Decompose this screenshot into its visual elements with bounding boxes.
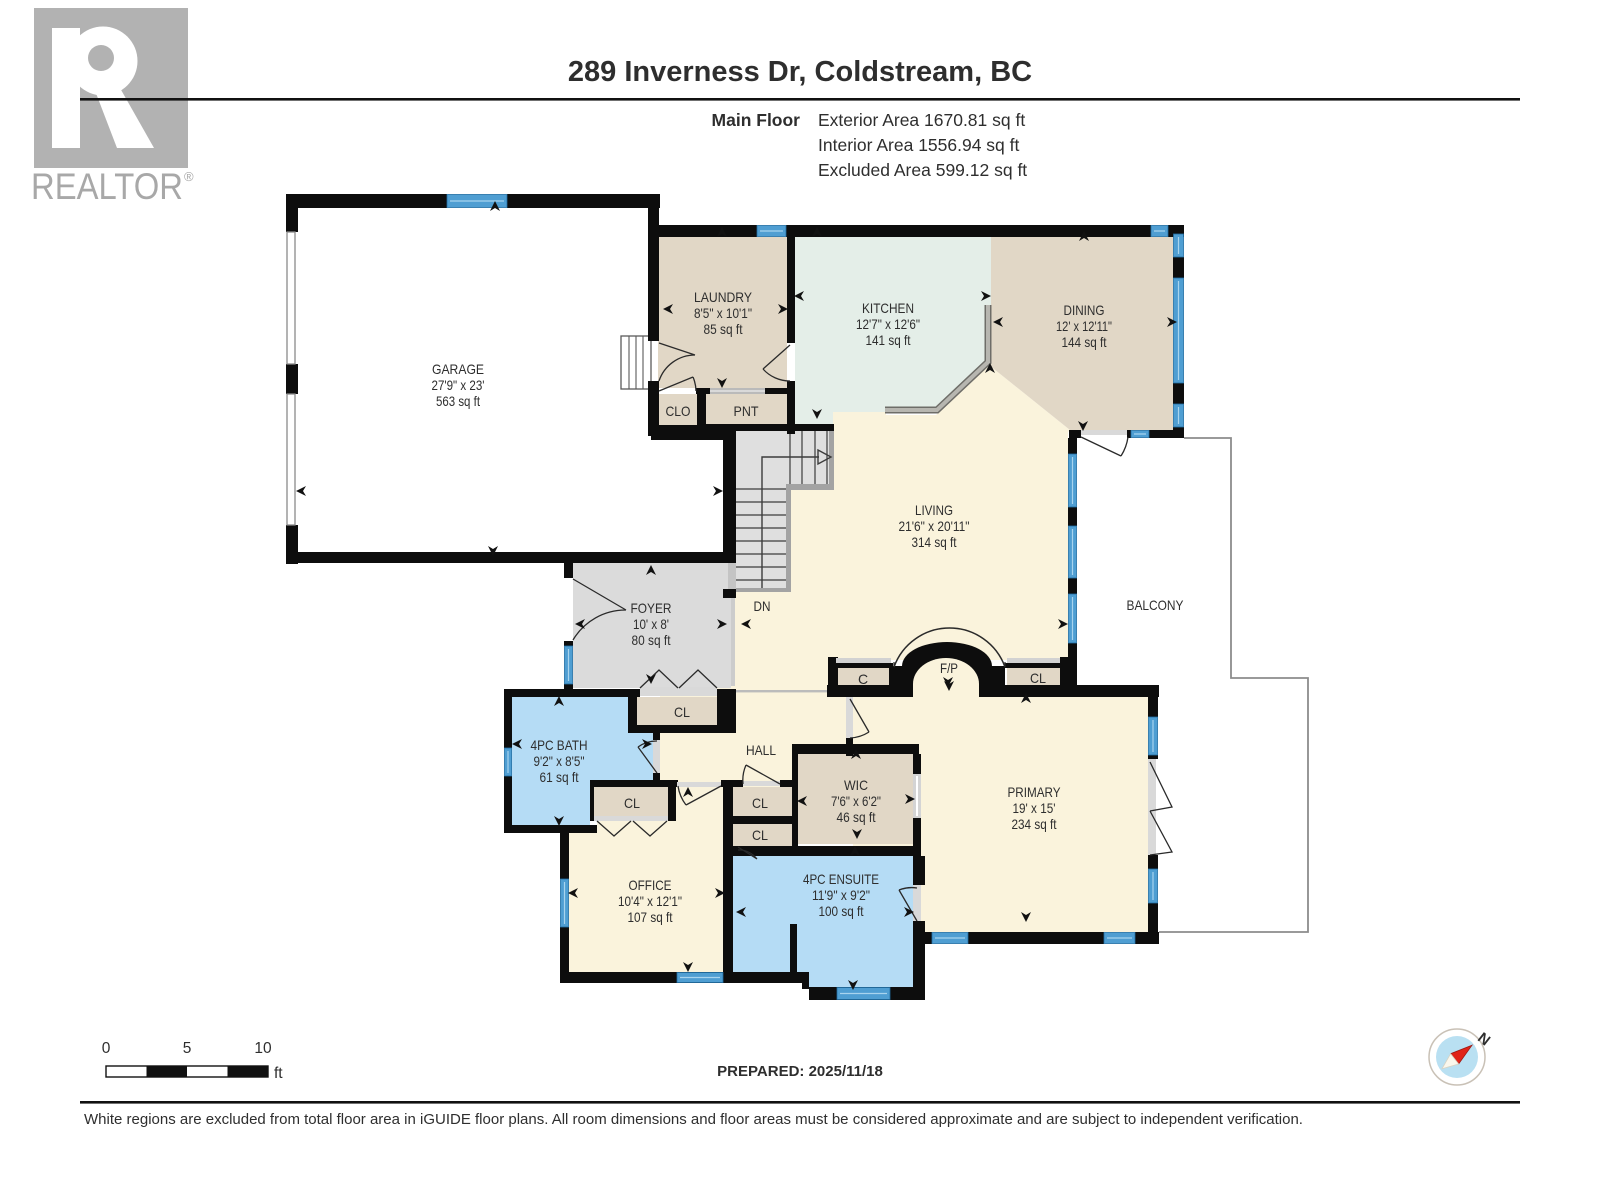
svg-text:10' x 8': 10' x 8'	[633, 616, 669, 632]
svg-text:Excluded Area 599.12 sq ft: Excluded Area 599.12 sq ft	[818, 160, 1027, 180]
svg-text:PREPARED: 2025/11/18: PREPARED: 2025/11/18	[717, 1063, 883, 1080]
svg-text:CL: CL	[624, 795, 640, 811]
svg-text:141 sq ft: 141 sq ft	[866, 332, 911, 348]
svg-text:12' x 12'11": 12' x 12'11"	[1056, 318, 1112, 334]
svg-text:563 sq ft: 563 sq ft	[436, 393, 480, 409]
svg-text:Interior Area 1556.94 sq ft: Interior Area 1556.94 sq ft	[818, 135, 1020, 155]
svg-text:LAUNDRY: LAUNDRY	[694, 289, 753, 305]
svg-text:0: 0	[102, 1040, 111, 1057]
svg-text:KITCHEN: KITCHEN	[862, 300, 914, 316]
svg-text:Exterior Area 1670.81 sq ft: Exterior Area 1670.81 sq ft	[818, 110, 1025, 130]
svg-text:5: 5	[183, 1040, 192, 1057]
svg-text:80 sq ft: 80 sq ft	[632, 632, 671, 648]
svg-text:9'2" x 8'5": 9'2" x 8'5"	[534, 753, 585, 769]
svg-text:FOYER: FOYER	[631, 600, 672, 616]
svg-text:8'5" x 10'1": 8'5" x 10'1"	[694, 305, 752, 321]
svg-text:ft: ft	[274, 1065, 283, 1082]
svg-text:CL: CL	[1030, 670, 1046, 686]
svg-text:CL: CL	[674, 704, 690, 720]
svg-text:100 sq ft: 100 sq ft	[819, 903, 864, 919]
svg-text:DN: DN	[754, 598, 771, 614]
svg-text:314 sq ft: 314 sq ft	[912, 534, 957, 550]
svg-text:DINING: DINING	[1064, 302, 1105, 318]
svg-text:289 Inverness Dr, Coldstream,: 289 Inverness Dr, Coldstream, BC	[568, 56, 1032, 88]
svg-text:10'4" x 12'1": 10'4" x 12'1"	[618, 893, 682, 909]
svg-text:LIVING: LIVING	[915, 502, 953, 518]
svg-text:85 sq ft: 85 sq ft	[704, 321, 743, 337]
svg-text:12'7" x 12'6": 12'7" x 12'6"	[856, 316, 920, 332]
svg-text:PNT: PNT	[734, 403, 759, 419]
svg-text:CL: CL	[752, 827, 768, 843]
svg-text:CLO: CLO	[666, 403, 691, 419]
svg-text:10: 10	[254, 1040, 272, 1057]
svg-text:144 sq ft: 144 sq ft	[1062, 334, 1107, 350]
svg-text:PRIMARY: PRIMARY	[1008, 784, 1062, 800]
svg-text:White regions are excluded fro: White regions are excluded from total fl…	[84, 1111, 1303, 1128]
svg-text:®: ®	[184, 169, 194, 184]
svg-text:C: C	[858, 671, 868, 687]
svg-text:11'9" x 9'2": 11'9" x 9'2"	[812, 887, 870, 903]
svg-text:7'6" x 6'2": 7'6" x 6'2"	[831, 793, 881, 809]
svg-text:4PC ENSUITE: 4PC ENSUITE	[803, 871, 879, 887]
svg-text:107 sq ft: 107 sq ft	[628, 909, 673, 925]
svg-text:21'6" x 20'11": 21'6" x 20'11"	[899, 518, 970, 534]
svg-text:F/P: F/P	[940, 660, 958, 676]
svg-text:234 sq ft: 234 sq ft	[1012, 816, 1057, 832]
svg-text:46 sq ft: 46 sq ft	[837, 809, 876, 825]
svg-text:BALCONY: BALCONY	[1127, 597, 1185, 613]
svg-text:OFFICE: OFFICE	[629, 877, 672, 893]
svg-text:Main Floor: Main Floor	[712, 110, 801, 130]
svg-text:HALL: HALL	[746, 742, 776, 758]
svg-text:61 sq ft: 61 sq ft	[540, 769, 579, 785]
svg-text:REALTOR: REALTOR	[31, 166, 183, 207]
svg-text:19' x 15': 19' x 15'	[1013, 800, 1056, 816]
svg-text:CL: CL	[752, 795, 768, 811]
svg-text:27'9" x 23': 27'9" x 23'	[432, 377, 485, 393]
svg-text:GARAGE: GARAGE	[432, 361, 484, 377]
svg-text:4PC BATH: 4PC BATH	[531, 737, 588, 753]
svg-text:WIC: WIC	[844, 777, 868, 793]
